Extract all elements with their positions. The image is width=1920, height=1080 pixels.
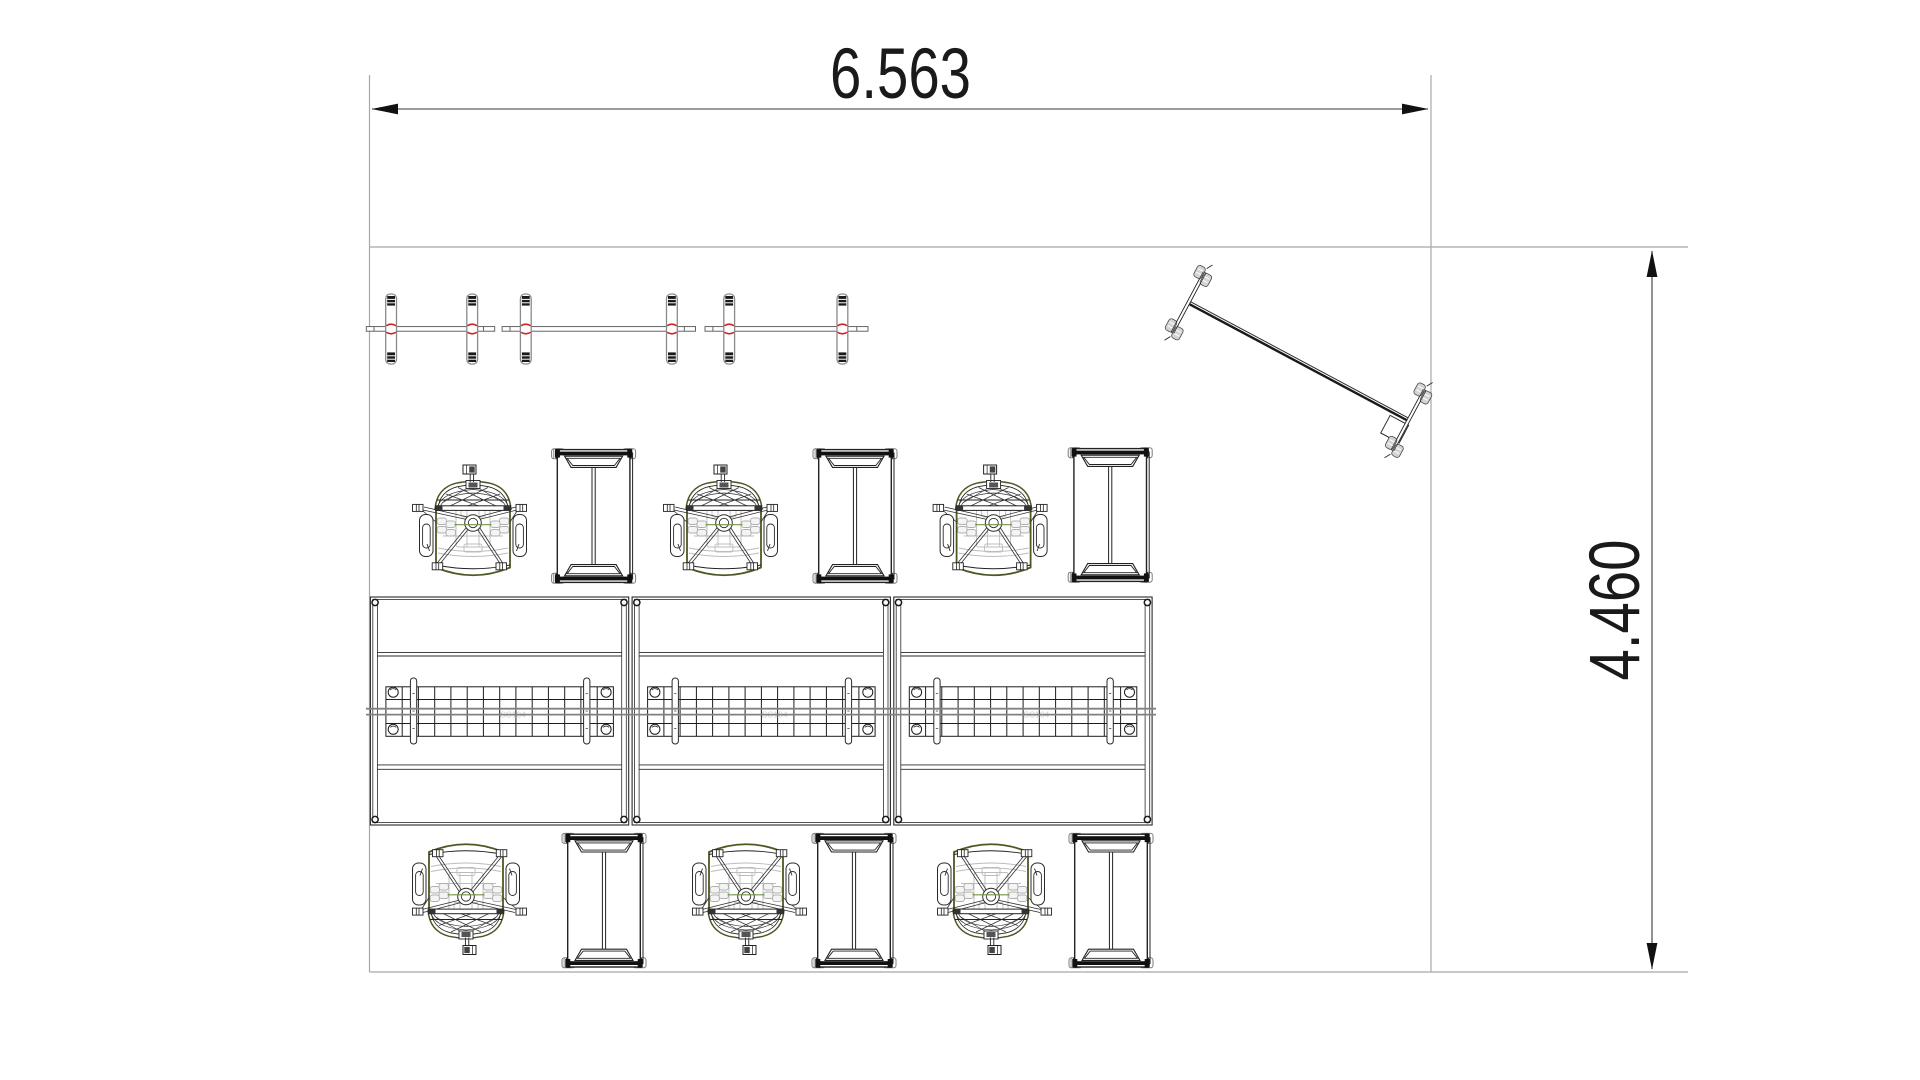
- svg-text:6.563: 6.563: [830, 35, 971, 114]
- svg-text:4.460: 4.460: [1576, 540, 1655, 681]
